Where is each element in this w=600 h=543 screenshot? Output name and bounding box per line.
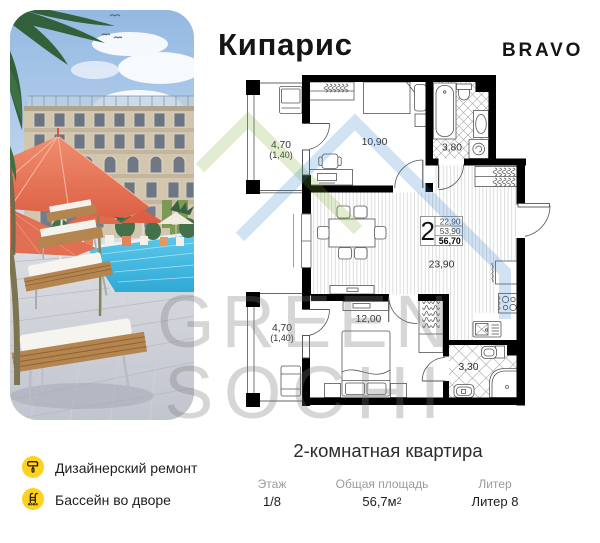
svg-text:2: 2 <box>420 216 434 246</box>
svg-text:3,30: 3,30 <box>458 362 478 373</box>
svg-text:3,80: 3,80 <box>442 143 462 154</box>
svg-text:23,90: 23,90 <box>429 260 455 271</box>
svg-text:56,70: 56,70 <box>439 236 461 246</box>
